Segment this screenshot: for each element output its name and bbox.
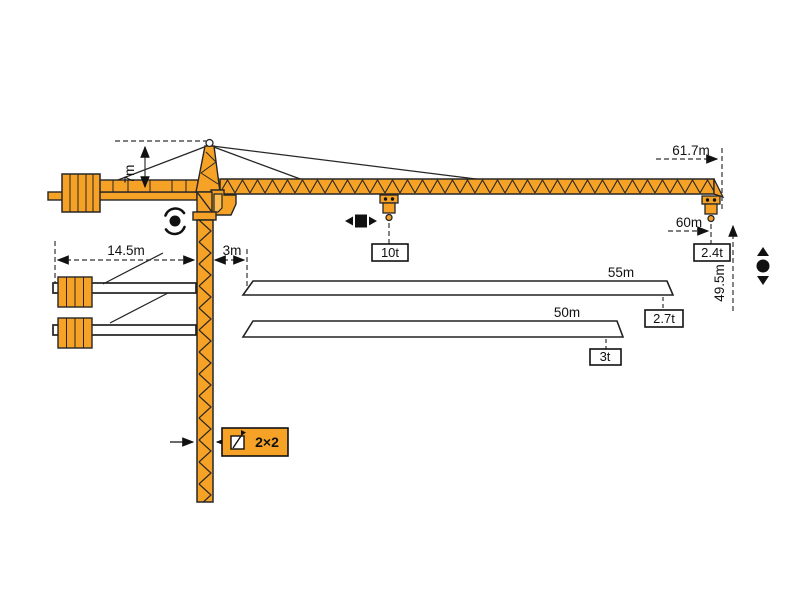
counterweight-option-2 bbox=[53, 318, 196, 348]
trolley-hook-tip bbox=[702, 196, 720, 222]
max-load-text: 10t bbox=[381, 245, 399, 260]
tip-load-text: 2.4t bbox=[701, 245, 723, 260]
crane-diagram: 10t 2.4t 7m 1 bbox=[0, 0, 800, 600]
hook-tip bbox=[708, 216, 714, 222]
counterweight-block bbox=[62, 174, 100, 212]
trolley-travel-icon bbox=[345, 215, 377, 228]
pendant-lines bbox=[118, 146, 500, 182]
apex-pin bbox=[206, 140, 213, 147]
tip-load-55-label: 2.7t bbox=[653, 311, 675, 326]
slew-rotation-icon bbox=[166, 209, 185, 234]
hoist-travel-icon bbox=[757, 247, 770, 285]
mast-section-callout: 2×2 bbox=[170, 428, 288, 456]
hook-radius-label: 60m bbox=[676, 215, 702, 230]
trolley-hook-mid bbox=[380, 195, 398, 221]
tip-load-label: 2.4t bbox=[694, 244, 730, 261]
slewing-unit bbox=[193, 192, 216, 220]
tower-crane-diagram-page: 10t 2.4t 7m 1 bbox=[0, 0, 800, 600]
head-height-label: 7m bbox=[122, 165, 137, 184]
rear-offset-label: 3m bbox=[223, 243, 242, 258]
hook-mid bbox=[386, 215, 392, 221]
jib-option-55m: 55m 2.7t bbox=[243, 265, 683, 327]
max-radius-label: 61.7m bbox=[672, 143, 710, 158]
cab-window bbox=[214, 194, 222, 212]
mast-section-label: 2×2 bbox=[255, 434, 279, 450]
jib bbox=[220, 179, 723, 197]
hook-height-label: 49.5m bbox=[712, 264, 727, 302]
counterweight-option-1 bbox=[53, 277, 196, 307]
tip-load-50-label: 3t bbox=[600, 349, 611, 364]
counterjib-length-label: 14.5m bbox=[107, 243, 145, 258]
jib-50-label: 50m bbox=[554, 305, 580, 320]
jib-option-50m: 50m 3t bbox=[243, 305, 623, 365]
jib-55-label: 55m bbox=[608, 265, 634, 280]
max-load-label: 10t bbox=[372, 244, 408, 261]
tower-mast bbox=[197, 220, 213, 502]
